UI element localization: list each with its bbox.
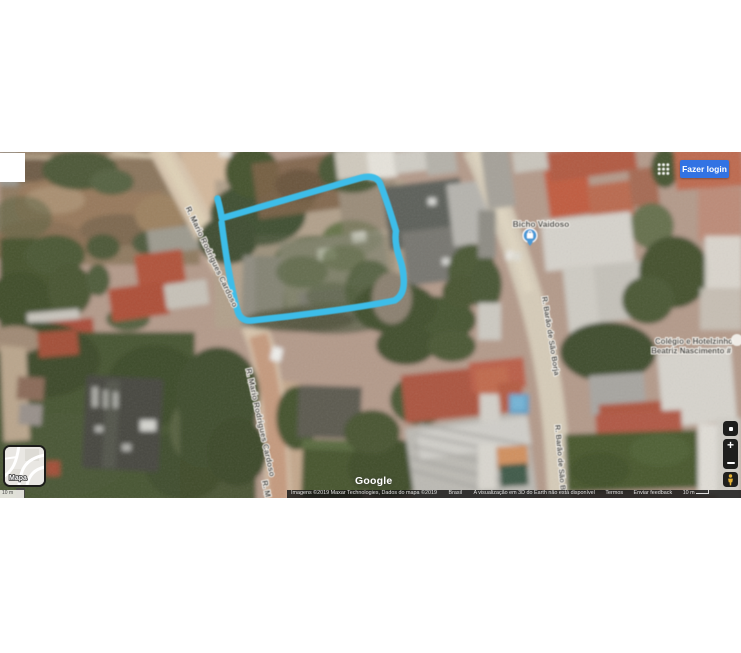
svg-text:Bicho Vaidoso: Bicho Vaidoso (513, 220, 569, 229)
svg-text:Beatriz Nascimento #: Beatriz Nascimento # (651, 347, 731, 356)
svg-text:Mapa: Mapa (9, 475, 27, 482)
svg-text:Colégio e Hotelzinho: Colégio e Hotelzinho (655, 337, 733, 346)
